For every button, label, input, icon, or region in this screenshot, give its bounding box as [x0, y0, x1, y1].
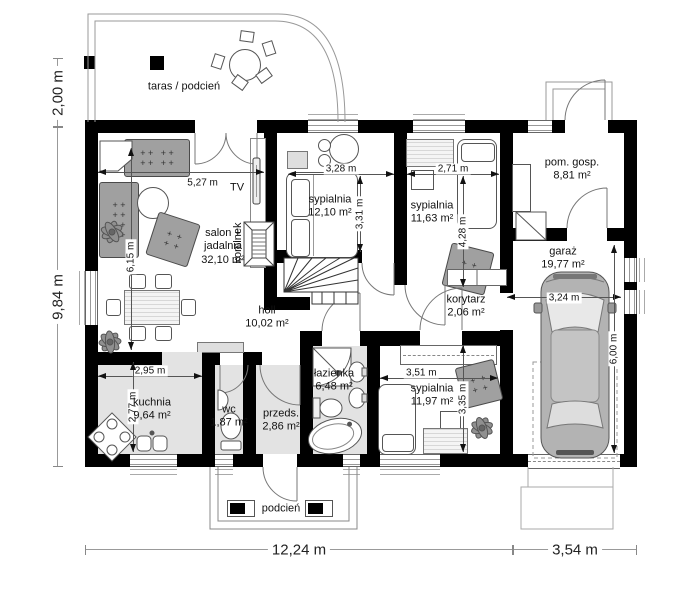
- wall-segment: [624, 282, 637, 290]
- window: [624, 258, 637, 282]
- built-in-closet: [447, 269, 507, 286]
- room-label-taras: taras / podcień: [148, 80, 220, 93]
- dining-table: [124, 290, 180, 325]
- room-label-wc: wc 1,87 m²: [210, 404, 247, 431]
- room-label-podcien: podcień: [262, 502, 301, 515]
- dim-taras-depth: 2,00 m: [57, 58, 58, 127]
- room-label-sypialnia1: sypialnia 12,10 m²: [308, 194, 351, 221]
- dim-sypialnia3-depth: 3,35 m: [463, 345, 464, 452]
- wall-segment: [177, 454, 215, 467]
- pillow: [382, 434, 414, 452]
- wall-segment: [360, 331, 420, 346]
- pillow: [461, 143, 495, 162]
- garden-chair: [239, 30, 254, 43]
- dim-sypialnia1-width: 3,28 m: [288, 174, 394, 175]
- dim-sypialnia2-width: 2,71 m: [407, 174, 499, 175]
- porch-column-core: [230, 503, 245, 514]
- wall-segment: [624, 314, 637, 467]
- window: [528, 120, 552, 133]
- taras-column: [150, 56, 164, 70]
- wall-segment: [257, 120, 308, 133]
- wall-segment: [513, 228, 567, 241]
- dim-garaz-width: 3,24 m: [507, 297, 621, 298]
- wall-segment: [85, 352, 162, 365]
- window: [380, 454, 440, 467]
- wall-segment: [465, 120, 528, 133]
- pillow: [291, 219, 310, 257]
- room-label-sypialnia3: sypialnia 11,97 m²: [411, 383, 454, 410]
- washing-machine: [512, 164, 531, 212]
- sideboard: [197, 342, 244, 353]
- chair: [318, 139, 331, 152]
- dining-chair: [155, 326, 172, 341]
- window-sill: [215, 469, 233, 475]
- window: [308, 120, 358, 133]
- nightstand: [287, 151, 308, 169]
- driveway-outline: [521, 467, 613, 529]
- wall-segment: [440, 454, 528, 467]
- wall-segment: [85, 454, 130, 467]
- garage-door: [528, 454, 620, 469]
- wall-segment: [360, 454, 380, 467]
- wall-segment: [620, 454, 637, 467]
- wall-segment: [607, 228, 637, 241]
- lazienka-floor: [313, 346, 367, 454]
- room-label-korytarz: korytarz 2,06 m²: [446, 294, 485, 321]
- dim-sypialnia2-depth: 4,28 m: [463, 176, 464, 287]
- wall-segment: [264, 263, 277, 310]
- window: [624, 290, 637, 314]
- dim-sypialnia3-width: 3,51 m: [380, 378, 498, 379]
- tv-label: TV: [230, 181, 244, 194]
- wall-segment: [552, 120, 565, 133]
- dining-chair: [106, 299, 121, 316]
- window-sill: [79, 271, 85, 325]
- room-label-lazienka: łazienka 6,48 m²: [314, 368, 354, 395]
- room-label-salon: salon + jadalnia 32,10 m²: [193, 227, 253, 267]
- window: [413, 120, 465, 133]
- window: [215, 454, 233, 467]
- dim-garaz-depth: 6,00 m: [614, 245, 615, 453]
- wall-segment: [462, 331, 513, 346]
- room-label-sypialnia2: sypialnia 11,63 m²: [411, 200, 454, 227]
- porch-column-core: [308, 503, 323, 514]
- wall-segment: [300, 346, 313, 454]
- dim-garaz-ext-width: 3,54 m: [513, 549, 637, 550]
- window-sill: [413, 114, 465, 120]
- parking-dash: [533, 362, 617, 458]
- window-sill: [130, 469, 177, 475]
- garden-chair: [262, 40, 277, 57]
- window-sill: [380, 469, 440, 475]
- window: [130, 454, 177, 467]
- wall-segment: [300, 331, 322, 346]
- window-sill: [308, 114, 358, 120]
- wall-segment: [215, 352, 220, 365]
- room-label-przedsionek: przeds. 2,86 m²: [262, 408, 299, 435]
- dim-salon-width: 5,27 m: [98, 172, 264, 173]
- podcien-outline: [210, 467, 357, 529]
- plant-icon: [467, 413, 496, 442]
- dim-house-depth: 9,84 m: [57, 127, 58, 467]
- nightstand: [287, 259, 308, 277]
- room-label-kuchnia: kuchnia 9,64 m²: [133, 397, 171, 424]
- dim-sypialnia1-depth: 3,31 m: [360, 176, 361, 252]
- room-label-pom-gosp: pom. gosp. 8,81 m²: [545, 157, 599, 184]
- room-label-garaz: garaż 19,77 m²: [541, 246, 584, 273]
- wall-segment: [608, 120, 637, 133]
- floor-plan: taras / podcień salon + jadalnia 32,10 m…: [0, 0, 700, 599]
- kuchnia-passage-floor: [162, 352, 202, 365]
- dining-chair: [181, 299, 196, 316]
- room-label-holl: holl 10,02 m²: [245, 305, 288, 332]
- wall-segment: [85, 120, 195, 133]
- taras-column: [84, 56, 95, 69]
- window-sill: [639, 290, 645, 314]
- garden-chair: [211, 53, 226, 70]
- window: [85, 271, 98, 325]
- dim-kuchnia-width: 2,95 m: [98, 376, 202, 377]
- window-sill: [639, 258, 645, 282]
- window-sill: [343, 469, 360, 475]
- entrance-porch-outline: [546, 82, 612, 120]
- small-table: [329, 134, 359, 164]
- wall-segment: [233, 454, 263, 467]
- pillow: [291, 179, 310, 217]
- kominek-label: kominek: [232, 223, 244, 264]
- dim-house-width: 12,24 m: [85, 549, 513, 550]
- dim-salon-depth: 6,15 m: [131, 148, 132, 350]
- window: [343, 454, 360, 467]
- wall-segment: [297, 454, 343, 467]
- dining-chair: [155, 274, 172, 289]
- wall-segment: [358, 120, 413, 133]
